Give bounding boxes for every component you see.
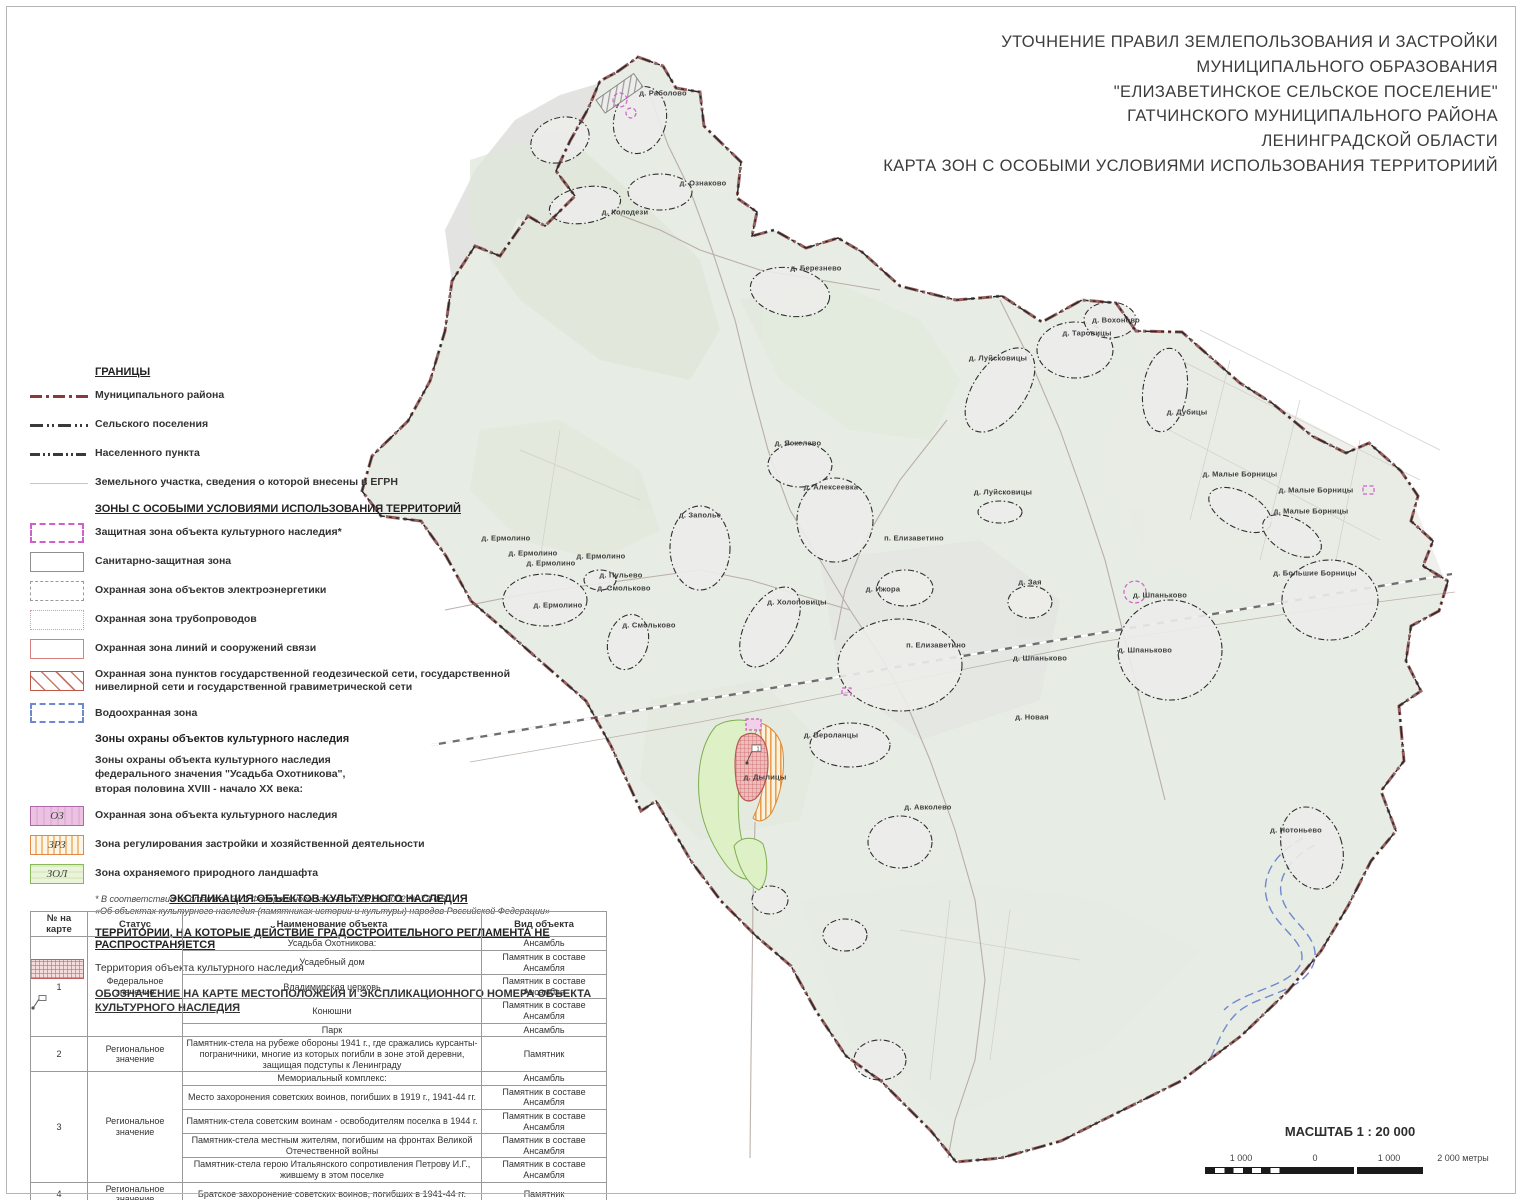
settlement-outline bbox=[670, 506, 730, 590]
title-line: "ЕЛИЗАВЕТИНСКОЕ СЕЛЬСКОЕ ПОСЕЛЕНИЕ" bbox=[738, 80, 1498, 105]
settlement-outline bbox=[1008, 586, 1052, 618]
legend-label: Муниципального района bbox=[95, 389, 224, 402]
scale-bar bbox=[1205, 1167, 1495, 1174]
legend-label: Зона охраняемого природного ландшафта bbox=[95, 867, 318, 880]
map-title: УТОЧНЕНИЕ ПРАВИЛ ЗЕМЛЕПОЛЬЗОВАНИЯ И ЗАСТ… bbox=[738, 30, 1498, 179]
explication-heading: ЭКСПЛИКАЦИЯ ОБЪЕКТОВ КУЛЬТУРНОГО НАСЛЕДИ… bbox=[30, 893, 607, 905]
legend-item-zol: ЗОЛ Зона охраняемого природного ландшафт… bbox=[30, 864, 615, 884]
table-cell: 3 bbox=[31, 1072, 88, 1182]
table-cell: Владимирская церковь bbox=[183, 975, 482, 999]
settlement-outline bbox=[854, 1040, 906, 1080]
legend-borders-heading: ГРАНИЦЫ bbox=[95, 366, 615, 378]
scale-tick: 0 bbox=[1312, 1153, 1317, 1163]
legend-label: Санитарно-защитная зона bbox=[95, 555, 231, 568]
district-border-line-swatch bbox=[30, 395, 95, 398]
protective-zone-swatch bbox=[30, 523, 84, 543]
legend-label: Населенного пункта bbox=[95, 447, 200, 460]
legend-item-pipeline-zone: Охранная зона трубопроводов bbox=[30, 610, 615, 630]
legend-zones-heading: ЗОНЫ С ОСОБЫМИ УСЛОВИЯМИ ИСПОЛЬЗОВАНИЯ Т… bbox=[95, 503, 615, 515]
table-cell: Усадьба Охотникова: bbox=[183, 937, 482, 951]
settlement-outline bbox=[768, 443, 832, 487]
parcel-line-swatch bbox=[30, 483, 95, 484]
legend-item-district-border: Муниципального района bbox=[30, 386, 615, 406]
scale-tick: 1 000 bbox=[1378, 1153, 1401, 1163]
legend-label: Охранная зона объектов электроэнергетики bbox=[95, 584, 326, 597]
table-cell: Памятник-стела герою Итальянского сопрот… bbox=[183, 1158, 482, 1182]
locality-border-line-swatch bbox=[30, 453, 95, 456]
settlement-outline bbox=[1282, 560, 1378, 640]
zone-oz-protection bbox=[746, 719, 761, 730]
legend-item-protective-zone: Защитная зона объекта культурного наслед… bbox=[30, 523, 615, 543]
table-cell: Усадебный дом bbox=[183, 951, 482, 975]
table-row: 4Региональное значениеБратское захоронен… bbox=[31, 1182, 607, 1200]
table-row: 3Региональное значениеМемориальный компл… bbox=[31, 1072, 607, 1086]
scale-title: МАСШТАБ 1 : 20 000 bbox=[1205, 1124, 1495, 1139]
table-cell: Памятник в составе Ансамбля bbox=[482, 1134, 607, 1158]
settlement-outline bbox=[628, 174, 692, 210]
title-line: ГАТЧИНСКОГО МУНИЦИПАЛЬНОГО РАЙОНА bbox=[738, 104, 1498, 129]
table-cell: Конюшни bbox=[183, 999, 482, 1023]
legend-okn-paragraph: Зоны охраны объекта культурного наследия… bbox=[95, 753, 615, 796]
table-cell: Региональное значение bbox=[88, 1182, 183, 1200]
table-cell: Региональное значение bbox=[88, 1037, 183, 1072]
legend-item-oz: ОЗ Охранная зона объекта культурного нас… bbox=[30, 806, 615, 826]
zol-swatch: ЗОЛ bbox=[30, 864, 84, 884]
scale-bar-checker bbox=[1205, 1167, 1281, 1174]
legend-label: Водоохранная зона bbox=[95, 707, 197, 720]
table-cell: 4 bbox=[31, 1182, 88, 1200]
settlement-outline bbox=[1118, 600, 1222, 700]
scale-tick: 1 000 bbox=[1230, 1153, 1253, 1163]
legend-item-sanitary-zone: Санитарно-защитная зона bbox=[30, 552, 615, 572]
table-row: 2Региональное значениеПамятник-стела на … bbox=[31, 1037, 607, 1072]
heritage-table: № на карте Статус Наименование объекта В… bbox=[30, 911, 607, 1200]
settlement-border-line-swatch bbox=[30, 424, 95, 427]
settlement-outline bbox=[797, 478, 873, 562]
electro-zone-swatch bbox=[30, 581, 84, 601]
legend-label: Охранная зона пунктов государственной ге… bbox=[95, 668, 565, 694]
legend-label: Охранная зона трубопроводов bbox=[95, 613, 257, 626]
legend-item-locality-border: Населенного пункта bbox=[30, 444, 615, 464]
legend-item-parcel-border: Земельного участка, сведения о которой в… bbox=[30, 473, 615, 493]
table-cell: 2 bbox=[31, 1037, 88, 1072]
scale-ticks: 1 000 0 1 000 2 000 метры bbox=[1205, 1153, 1495, 1165]
table-cell: Место захоронения советских воинов, поги… bbox=[183, 1085, 482, 1109]
table-cell: Памятник в составе Ансамбля bbox=[482, 951, 607, 975]
explication-block: ЭКСПЛИКАЦИЯ ОБЪЕКТОВ КУЛЬТУРНОГО НАСЛЕДИ… bbox=[30, 893, 607, 1200]
map-sheet: 1 д. Раболовод. Ознаковод. Колодезид. Бе… bbox=[0, 0, 1522, 1200]
table-cell: Памятник-стела советским воинам - освобо… bbox=[183, 1109, 482, 1133]
title-line: МУНИЦИПАЛЬНОГО ОБРАЗОВАНИЯ bbox=[738, 55, 1498, 80]
legend-item-electro-zone: Охранная зона объектов электроэнергетики bbox=[30, 581, 615, 601]
settlement-outline bbox=[877, 570, 933, 606]
table-cell: Памятник bbox=[482, 1037, 607, 1072]
geodesic-zone-swatch bbox=[30, 671, 84, 691]
settlement-outline bbox=[752, 886, 788, 914]
col-header-kind: Вид объекта bbox=[482, 912, 607, 937]
title-line: ЛЕНИНГРАДСКОЙ ОБЛАСТИ bbox=[738, 129, 1498, 154]
col-header-name: Наименование объекта bbox=[183, 912, 482, 937]
legend-item-geodesic-zone: Охранная зона пунктов государственной ге… bbox=[30, 668, 615, 694]
pipeline-zone-swatch bbox=[30, 610, 84, 630]
legend-label: Охранная зона линий и сооружений связи bbox=[95, 642, 316, 655]
table-cell: Памятник-стела местным жителям, погибшим… bbox=[183, 1134, 482, 1158]
sanitary-zone-swatch bbox=[30, 552, 84, 572]
scale-block: МАСШТАБ 1 : 20 000 1 000 0 1 000 2 000 м… bbox=[1205, 1124, 1495, 1174]
legend-label: Охранная зона объекта культурного наслед… bbox=[95, 809, 337, 822]
zrz-swatch: ЗРЗ bbox=[30, 835, 84, 855]
legend-okn-heading: Зоны охраны объектов культурного наследи… bbox=[95, 733, 615, 745]
table-cell: Памятник в составе Ансамбля bbox=[482, 999, 607, 1023]
scale-bar-segment bbox=[1357, 1167, 1423, 1174]
oz-swatch: ОЗ bbox=[30, 806, 84, 826]
table-cell: Парк bbox=[183, 1023, 482, 1037]
col-header-number: № на карте bbox=[31, 912, 88, 937]
settlement-outline bbox=[810, 723, 890, 767]
legend-item-settlement-border: Сельского поселения bbox=[30, 415, 615, 435]
table-cell: Памятник в составе Ансамбля bbox=[482, 975, 607, 999]
legend-item-comm-zone: Охранная зона линий и сооружений связи bbox=[30, 639, 615, 659]
legend-item-zrz: ЗРЗ Зона регулирования застройки и хозяй… bbox=[30, 835, 615, 855]
settlement-outline bbox=[838, 619, 962, 711]
table-row: 1Федеральное значениеУсадьба Охотникова:… bbox=[31, 937, 607, 951]
table-cell: Ансамбль bbox=[482, 1072, 607, 1086]
table-cell: Памятник в составе Ансамбля bbox=[482, 1109, 607, 1133]
water-zone-swatch bbox=[30, 703, 84, 723]
settlement-outline bbox=[823, 919, 867, 951]
table-cell: Региональное значение bbox=[88, 1072, 183, 1182]
legend-label: Земельного участка, сведения о которой в… bbox=[95, 476, 398, 489]
table-cell: Памятник в составе Ансамбля bbox=[482, 1158, 607, 1182]
table-cell: Братское захоронение советских воинов, п… bbox=[183, 1182, 482, 1200]
legend-label: Сельского поселения bbox=[95, 418, 208, 431]
title-line: УТОЧНЕНИЕ ПРАВИЛ ЗЕМЛЕПОЛЬЗОВАНИЯ И ЗАСТ… bbox=[738, 30, 1498, 55]
table-cell: Памятник в составе Ансамбля bbox=[482, 1085, 607, 1109]
comm-zone-swatch bbox=[30, 639, 84, 659]
table-cell: Ансамбль bbox=[482, 1023, 607, 1037]
legend-label: Зона регулирования застройки и хозяйстве… bbox=[95, 838, 425, 851]
svg-text:1: 1 bbox=[757, 746, 760, 752]
legend-label: Защитная зона объекта культурного наслед… bbox=[95, 526, 342, 539]
scale-bar-segment bbox=[1280, 1167, 1354, 1174]
table-cell: Мемориальный комплекс: bbox=[183, 1072, 482, 1086]
table-cell: Памятник bbox=[482, 1182, 607, 1200]
table-cell: Памятник-стела на рубеже обороны 1941 г.… bbox=[183, 1037, 482, 1072]
table-cell: 1 bbox=[31, 937, 88, 1037]
col-header-status: Статус bbox=[88, 912, 183, 937]
legend-item-water-zone: Водоохранная зона bbox=[30, 703, 615, 723]
settlement-outline bbox=[868, 816, 932, 868]
title-line: КАРТА ЗОН С ОСОБЫМИ УСЛОВИЯМИ ИСПОЛЬЗОВА… bbox=[738, 154, 1498, 179]
table-cell: Федеральное значение bbox=[88, 937, 183, 1037]
settlement-outline bbox=[978, 501, 1022, 523]
scale-tick: 2 000 метры bbox=[1437, 1153, 1489, 1163]
table-cell: Ансамбль bbox=[482, 937, 607, 951]
